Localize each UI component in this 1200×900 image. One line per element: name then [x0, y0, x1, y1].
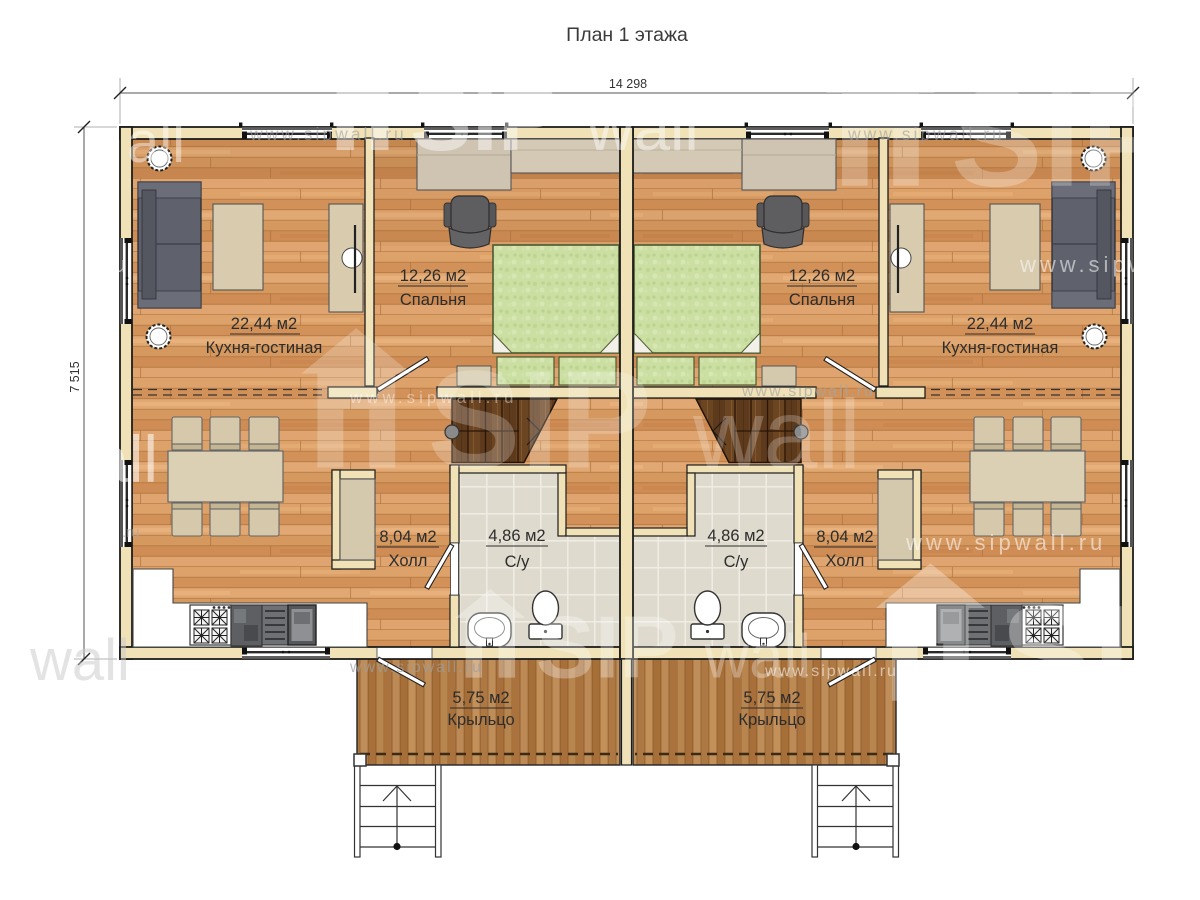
svg-text:8,04 м2: 8,04 м2 — [379, 528, 436, 546]
svg-text:.ru: .ru — [100, 252, 126, 277]
svg-text:www.sipwall.ru: www.sipwall.ru — [249, 124, 407, 144]
svg-text:Крыльцо: Крыльцо — [738, 711, 805, 729]
svg-text:5,75 м2: 5,75 м2 — [743, 689, 800, 707]
svg-text:12,26 м2: 12,26 м2 — [789, 267, 855, 285]
svg-text:www.sipwall.ru: www.sipwall.ru — [349, 659, 483, 676]
svg-text:www.sipwall.ru: www.sipwall.ru — [349, 388, 517, 407]
svg-text:www.sipwall.ru: www.sipwall.ru — [1019, 252, 1200, 277]
svg-text:Спальня: Спальня — [400, 291, 466, 309]
svg-text:Холл: Холл — [826, 552, 865, 570]
svg-text:С/у: С/у — [505, 553, 531, 571]
svg-text:4,86 м2: 4,86 м2 — [707, 527, 764, 545]
svg-text:С/у: С/у — [724, 553, 750, 571]
svg-text:all: all — [127, 110, 185, 175]
svg-text:12,26 м2: 12,26 м2 — [400, 267, 466, 285]
svg-text:Крыльцо: Крыльцо — [447, 711, 514, 729]
svg-text:www.sipwall.ru: www.sipwall.ru — [741, 383, 875, 400]
svg-text:Кухня-гостиная: Кухня-гостиная — [942, 339, 1059, 357]
svg-text:.ru: .ru — [122, 524, 140, 541]
svg-text:4,86 м2: 4,86 м2 — [488, 527, 545, 545]
svg-text:Кухня-гостиная: Кухня-гостиная — [206, 339, 323, 357]
svg-text:14 298: 14 298 — [609, 77, 647, 91]
svg-text:22,44 м2: 22,44 м2 — [231, 315, 297, 333]
svg-text:План 1 этажа: План 1 этажа — [566, 24, 688, 46]
svg-text:Спальня: Спальня — [789, 291, 855, 309]
svg-text:7 515: 7 515 — [68, 361, 82, 392]
svg-text:wall: wall — [29, 628, 130, 693]
svg-text:5,75 м2: 5,75 м2 — [452, 689, 509, 707]
svg-text:8,04 м2: 8,04 м2 — [816, 528, 873, 546]
svg-text:www.sipwall.ru: www.sipwall.ru — [905, 530, 1106, 555]
svg-text:Холл: Холл — [389, 552, 428, 570]
svg-text:all: all — [92, 422, 158, 496]
svg-text:www.sipwall.ru: www.sipwall.ru — [764, 663, 898, 680]
svg-text:22,44 м2: 22,44 м2 — [967, 315, 1033, 333]
svg-text:www.sipwall.ru: www.sipwall.ru — [847, 124, 1005, 144]
